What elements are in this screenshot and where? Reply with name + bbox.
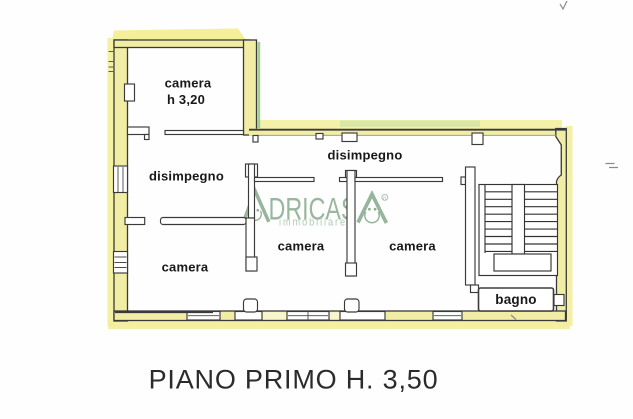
svg-text:camera: camera: [162, 260, 209, 275]
svg-text:camera: camera: [278, 239, 325, 254]
svg-text:bagno: bagno: [495, 292, 537, 307]
svg-text:disimpegno: disimpegno: [149, 169, 224, 184]
svg-text:camera: camera: [389, 239, 436, 254]
svg-text:immobiliare: immobiliare: [279, 217, 347, 229]
svg-text:disimpegno: disimpegno: [328, 148, 403, 163]
svg-text:camera: camera: [165, 76, 212, 91]
svg-text:h 3,20: h 3,20: [167, 92, 205, 107]
svg-text:PIANO PRIMO H. 3,50: PIANO PRIMO H. 3,50: [149, 365, 439, 395]
